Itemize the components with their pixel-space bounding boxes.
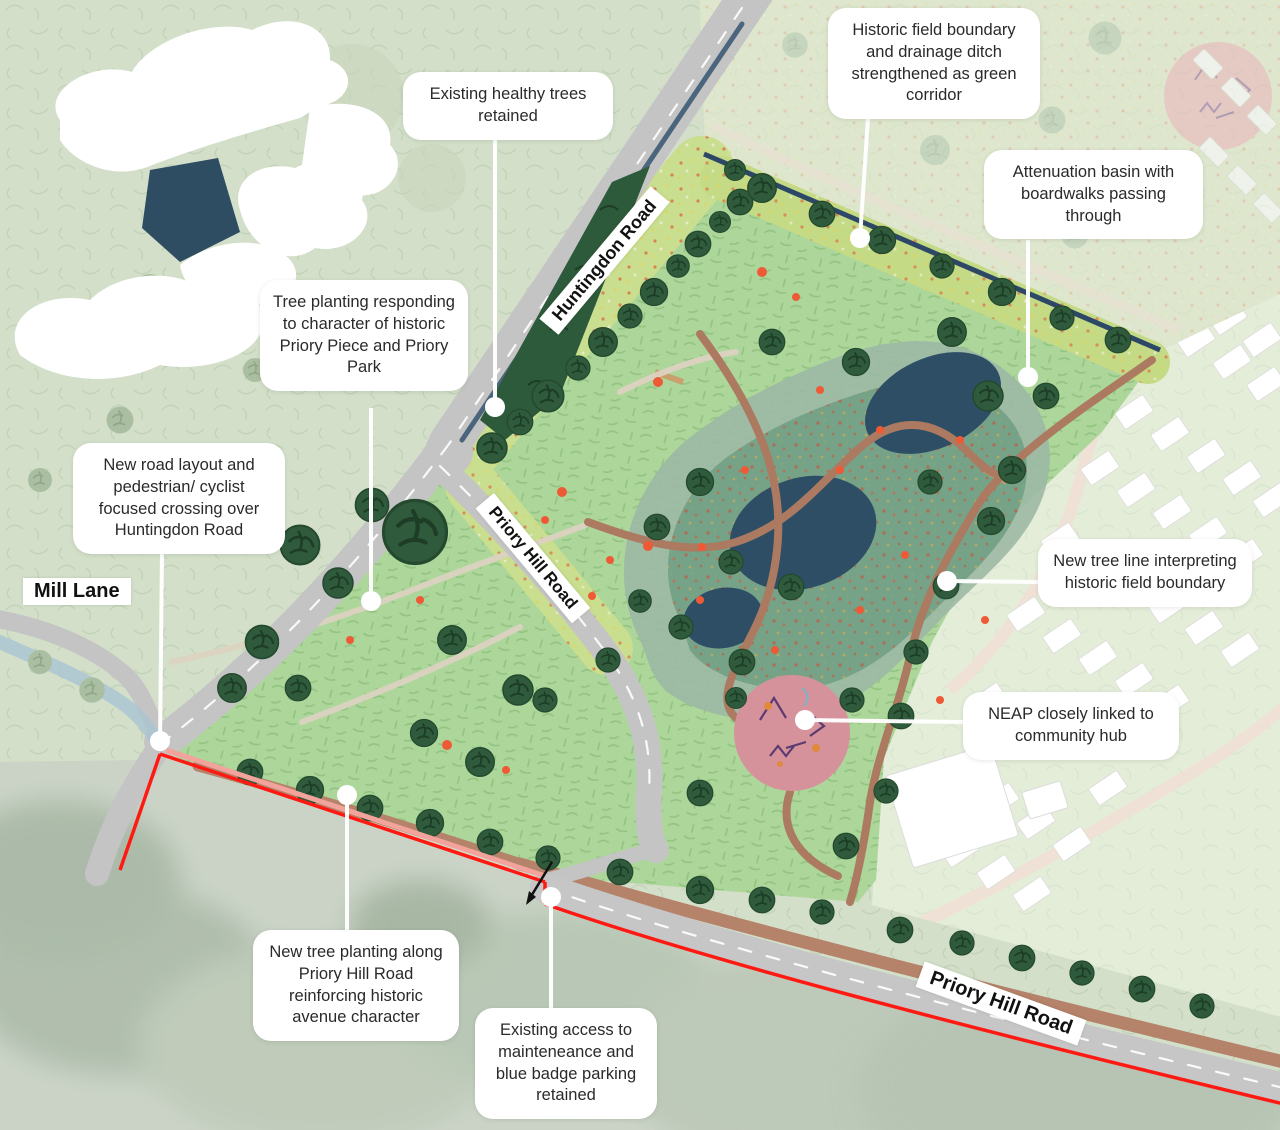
callout-neap: NEAP closely linked to community hub: [963, 692, 1179, 760]
callout-existing-access: Existing access to mainteneance and blue…: [475, 1008, 657, 1119]
callout-tree-planting-character: Tree planting responding to character of…: [260, 280, 468, 391]
road-label-mill-lane: Mill Lane: [23, 578, 131, 605]
callout-historic-boundary: Historic field boundary and drainage dit…: [828, 8, 1040, 119]
callout-new-tree-planting-avenue: New tree planting along Priory Hill Road…: [253, 930, 459, 1041]
masterplan-canvas: Existing healthy trees retained Historic…: [0, 0, 1280, 1130]
callout-new-tree-line: New tree line interpreting historic fiel…: [1038, 539, 1252, 607]
callout-new-road-layout: New road layout and pedestrian/ cyclist …: [73, 443, 285, 554]
callout-existing-trees: Existing healthy trees retained: [403, 72, 613, 140]
callout-attenuation-basin: Attenuation basin with boardwalks passin…: [984, 150, 1203, 239]
neap-play-area: [734, 675, 850, 791]
